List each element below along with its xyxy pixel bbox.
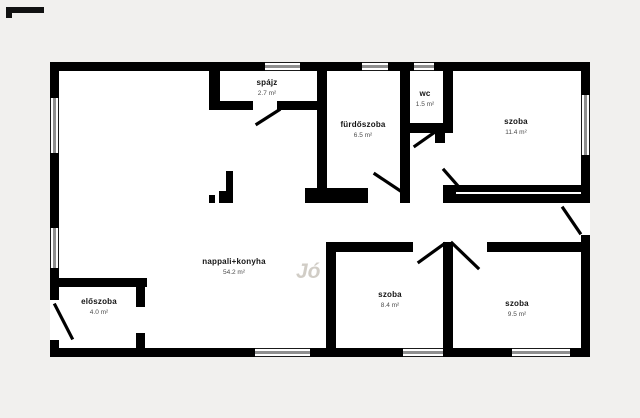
room-label-nappali-konyha: nappali+konyha 54.2 m² (202, 258, 265, 276)
window-room1-right (581, 95, 590, 155)
window-left-lower (50, 228, 59, 268)
wall-hallway-right-upper (136, 278, 145, 307)
wall-wc-door-jamb (435, 124, 445, 143)
room-area: 1.5 m² (416, 101, 434, 108)
wall-hallway-top (50, 278, 147, 287)
room-label-szoba-1: szoba 11.4 m² (504, 118, 528, 136)
room-label-spajz: spájz 2.7 m² (256, 79, 277, 97)
room-name: szoba (504, 118, 528, 127)
watermark: Jó (296, 260, 321, 284)
wall-wc-left (400, 62, 410, 203)
door-opening-entrance (50, 300, 59, 340)
room-name: fürdőszoba (340, 121, 385, 130)
wall-spajz-bottom-a (209, 101, 253, 110)
room-label-szoba-3: szoba 9.5 m² (505, 300, 529, 318)
window-left-upper (50, 98, 59, 153)
window-wc-top (414, 62, 434, 71)
window-room3-bottom (512, 348, 570, 357)
kitchen-counter-v (226, 171, 233, 191)
kitchen-counter-h (219, 191, 233, 203)
window-living-bottom (255, 348, 310, 357)
room-name: szoba (505, 300, 529, 309)
room-label-furdoszoba: fürdőszoba 6.5 m² (340, 121, 385, 139)
room-name: nappali+konyha (202, 258, 265, 267)
floorplan: Jó spájz 2. (0, 0, 640, 418)
room-name: szoba (378, 291, 402, 300)
kitchen-counter-block (209, 195, 215, 203)
door-opening-hall-right (581, 203, 590, 235)
wall-exterior-bottom (50, 348, 590, 357)
window-room2-bottom (403, 348, 443, 357)
window-bathroom-top (362, 62, 388, 71)
wall-room3-top (487, 242, 581, 252)
wall-wc-room-divider (443, 62, 453, 133)
wall-room1-bottom-line (456, 192, 581, 194)
room-label-wc: wc 1.5 m² (416, 90, 434, 108)
wall-room2-top (326, 242, 413, 252)
wall-room1-bottom (443, 185, 583, 203)
image-corner-mark (6, 7, 12, 18)
room-label-szoba-2: szoba 8.4 m² (378, 291, 402, 309)
room-name: előszoba (81, 298, 117, 307)
room-name: spájz (256, 79, 277, 88)
room-name: wc (416, 90, 434, 99)
window-spajz-top (265, 62, 300, 71)
room-area: 9.5 m² (505, 311, 529, 318)
wall-hallway-right-lower (136, 333, 145, 357)
room-area: 11.4 m² (504, 129, 528, 136)
room-area: 54.2 m² (202, 269, 265, 276)
wall-bathroom-bottom (305, 188, 368, 203)
room-area: 8.4 m² (378, 302, 402, 309)
wall-rooms-divider (443, 242, 453, 357)
room-area: 4.0 m² (81, 309, 117, 316)
room-label-eloszoba: előszoba 4.0 m² (81, 298, 117, 316)
room-area: 2.7 m² (256, 90, 277, 97)
wall-bathroom-left (317, 62, 327, 188)
wall-room2-left (326, 242, 336, 357)
room-area: 6.5 m² (340, 132, 385, 139)
